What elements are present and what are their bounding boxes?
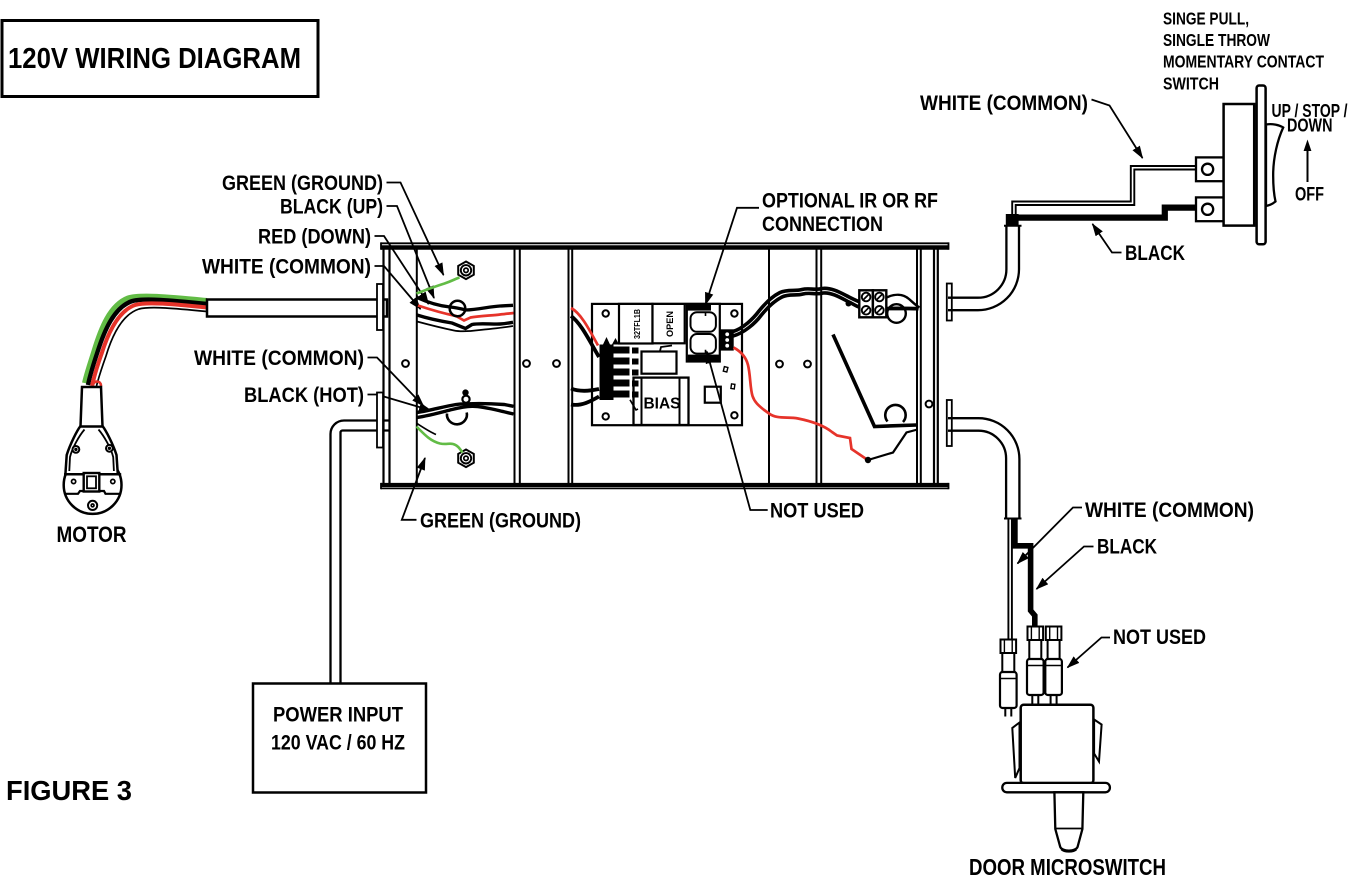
svg-text:POWER INPUT: POWER INPUT (273, 703, 403, 727)
svg-text:OPEN: OPEN (665, 311, 675, 337)
svg-text:BLACK: BLACK (1125, 241, 1185, 265)
svg-text:32TFL1B: 32TFL1B (633, 309, 642, 339)
svg-text:120 VAC / 60 HZ: 120 VAC / 60 HZ (271, 731, 405, 755)
svg-text:SINGE PULL,: SINGE PULL, (1163, 9, 1249, 29)
svg-text:DOOR MICROSWITCH: DOOR MICROSWITCH (969, 854, 1166, 880)
svg-text:OPTIONAL IR OR RF: OPTIONAL IR OR RF (762, 189, 938, 213)
svg-text:MOTOR: MOTOR (57, 522, 127, 547)
svg-text:BLACK (UP): BLACK (UP) (280, 195, 383, 219)
svg-text:BLACK (HOT): BLACK (HOT) (244, 383, 364, 407)
svg-text:NOT USED: NOT USED (770, 499, 864, 523)
svg-text:120V WIRING DIAGRAM: 120V WIRING DIAGRAM (8, 43, 301, 75)
svg-text:BIAS: BIAS (644, 396, 681, 413)
svg-text:SINGLE THROW: SINGLE THROW (1163, 30, 1270, 50)
svg-text:WHITE (COMMON): WHITE (COMMON) (194, 346, 364, 370)
svg-text:GREEN (GROUND): GREEN (GROUND) (420, 509, 581, 533)
svg-text:WHITE (COMMON): WHITE (COMMON) (1085, 498, 1254, 522)
svg-text:FIGURE 3: FIGURE 3 (6, 775, 132, 806)
svg-text:OFF: OFF (1295, 185, 1324, 206)
svg-text:NOT USED: NOT USED (1113, 625, 1206, 649)
svg-text:WHITE (COMMON): WHITE (COMMON) (920, 91, 1088, 115)
svg-text:BLACK: BLACK (1097, 535, 1157, 559)
svg-text:GREEN (GROUND): GREEN (GROUND) (222, 171, 383, 195)
svg-text:WHITE (COMMON): WHITE (COMMON) (202, 255, 371, 279)
svg-text:DOWN: DOWN (1287, 115, 1333, 136)
svg-text:CONNECTION: CONNECTION (762, 212, 883, 236)
svg-text:MOMENTARY CONTACT: MOMENTARY CONTACT (1163, 52, 1324, 72)
svg-text:RED (DOWN): RED (DOWN) (258, 225, 371, 249)
svg-text:SWITCH: SWITCH (1163, 74, 1219, 94)
